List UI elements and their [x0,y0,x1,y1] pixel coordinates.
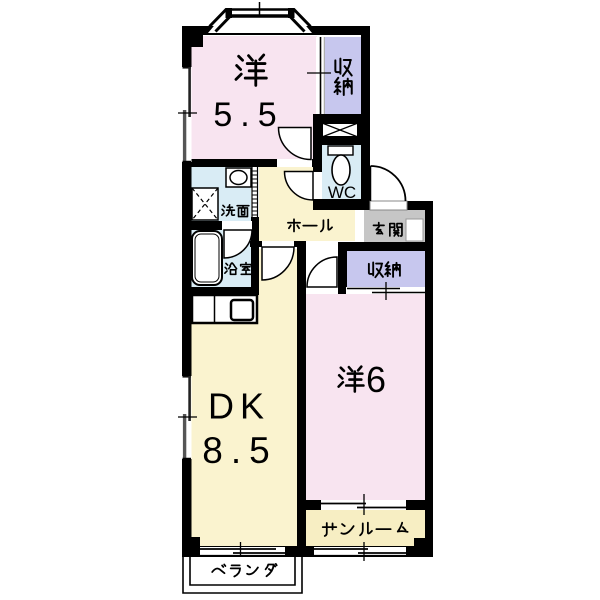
svg-text:8.5: 8.5 [202,430,277,471]
svg-text:5.5: 5.5 [213,96,284,134]
svg-text:6: 6 [366,359,386,400]
svg-text:DK: DK [208,386,270,427]
svg-text:WC: WC [328,183,356,202]
